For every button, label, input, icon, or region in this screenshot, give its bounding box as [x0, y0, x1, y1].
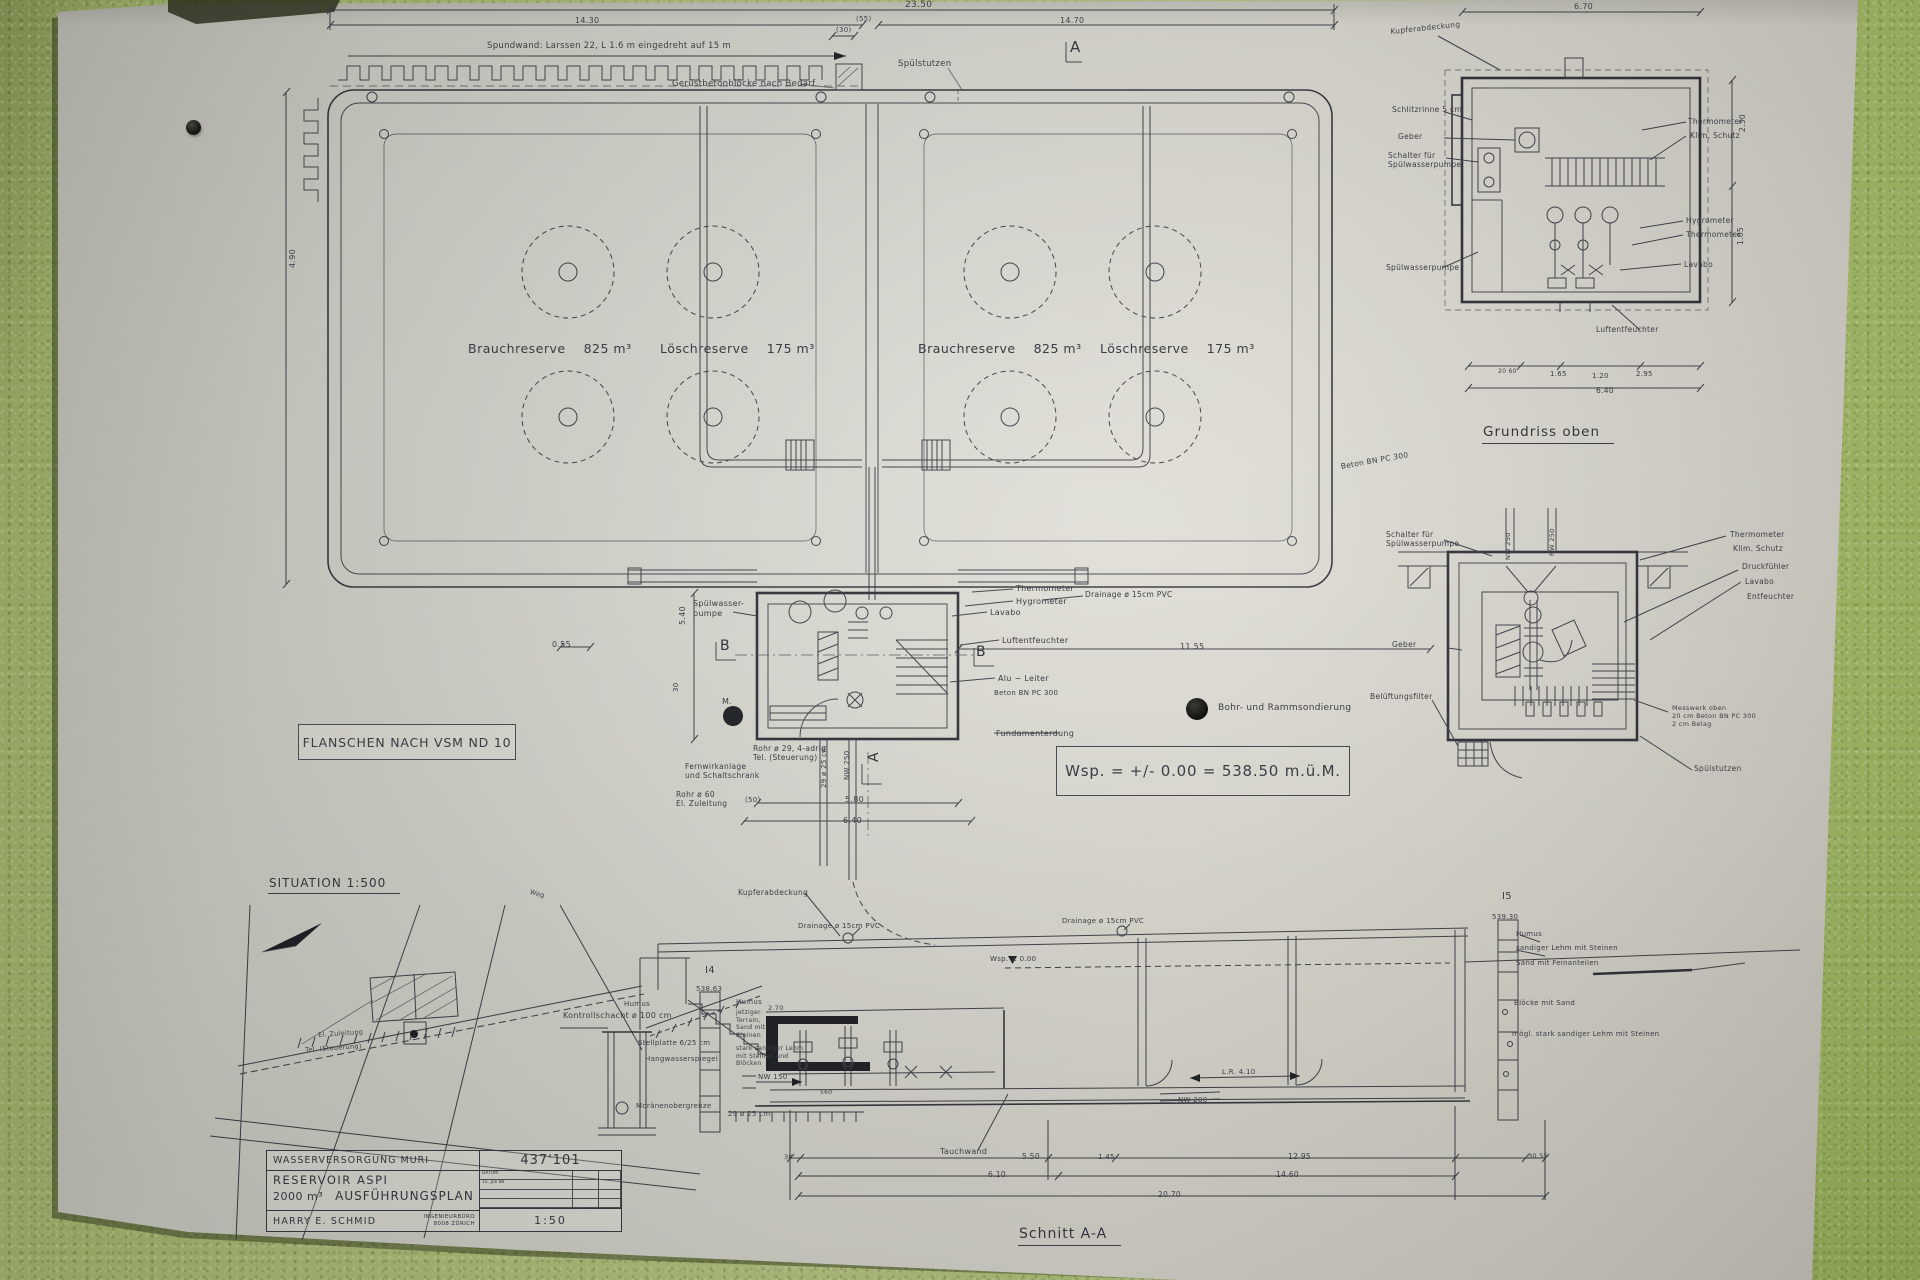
dim-1155: 11.55: [1180, 642, 1204, 652]
hangwasserspiegel-b: Hangwasserspiegel: [645, 1055, 718, 1064]
jetziger-note: jetziger Terrain, Sand mit Steinen: [736, 1009, 765, 1039]
i5-elev: 539.30: [1492, 913, 1518, 922]
dim-165v-tr: 1.65: [1736, 227, 1745, 245]
dim-1295-b: 12.95: [1288, 1152, 1311, 1161]
dim-490-left: 4.90: [288, 249, 298, 268]
weg-label: Weg: [529, 888, 546, 900]
hygrometer-tr: Hygrometer: [1686, 216, 1734, 225]
stellplatte-b: Stellplatte 6/25 cm: [638, 1039, 710, 1048]
geber-mr: Geber: [1392, 640, 1416, 649]
nw250-pipe: NW 250: [843, 750, 852, 780]
messwerk-note: Messwerk oben 20 cm Beton BN PC 300 2 cm…: [1672, 704, 1756, 728]
beton-diag: Beton BN PC 300: [1340, 450, 1409, 471]
tauchwand-b: Tauchwand: [940, 1147, 987, 1157]
humus-m: Humus: [736, 998, 762, 1007]
pile29-b: 29 ø 25 cm: [728, 1110, 770, 1119]
nw250-mr1: NW 250: [1504, 532, 1512, 560]
luftentfeuchter-tr: Luftentfeuchter: [1596, 325, 1659, 334]
nw150-b: NW 150: [758, 1073, 788, 1082]
drainage-b1: Drainage ø 15cm PVC: [798, 922, 880, 931]
wsp-b: Wsp. ± 0.00: [990, 955, 1036, 964]
lavabo-tr: Lavabo: [1684, 260, 1713, 269]
humus-r: Humus: [1516, 930, 1542, 939]
dim-30-top: (30): [836, 26, 852, 35]
nw250-mr2: NW 250: [1548, 528, 1556, 556]
drainage-main: Drainage ø 15cm PVC: [1085, 590, 1173, 599]
rohr29-note: Rohr ø 29, 4-adrig Tel. (Steuerung): [753, 744, 826, 763]
spuelstutzen-mr: Spülstutzen: [1694, 764, 1742, 773]
dim-2060-tr: 20 60: [1498, 368, 1517, 376]
kupferabdeckung-tr: Kupferabdeckung: [1390, 20, 1461, 37]
dim-640: 6.40: [843, 816, 862, 826]
moraene-l: Moränenobergrenze: [636, 1102, 711, 1111]
m-label: M.: [722, 697, 732, 707]
alu-leiter: Alu − Leiter: [998, 674, 1049, 684]
dim-120-tr: 1.20: [1592, 372, 1609, 381]
geruestbeton-note: Gerüstbetonblöcke nach Bedarf: [672, 79, 815, 90]
dim-055: 0.55: [552, 640, 571, 650]
dim-145-b: 1.45: [1098, 1153, 1115, 1162]
sandiger-r: sandiger Lehm mit Steinen: [1516, 944, 1618, 953]
i5-label: I5: [1502, 891, 1512, 904]
marker-b-right: B: [976, 644, 986, 662]
i4-elev: 538.63: [696, 985, 722, 994]
spuelstutzen-top: Spülstutzen: [898, 59, 951, 70]
dim-670-tr: 6.70: [1574, 2, 1593, 12]
lavabo-mr: Lavabo: [1745, 577, 1774, 586]
belueftungsfilter-mr: Belüftungsfilter: [1370, 692, 1432, 701]
thermometer2-tr: Thermometer: [1686, 230, 1741, 239]
rohr60-note: Rohr ø 60 El. Zuleitung: [676, 790, 727, 809]
lavabo-main: Lavabo: [990, 608, 1021, 618]
marker-a-top: A: [1070, 38, 1080, 57]
dim-30-b1: 30: [784, 1153, 793, 1161]
dim-165-tr: 1.65: [1550, 370, 1567, 379]
zuleitung-label: El. Zuleitung: [318, 1028, 364, 1039]
kupferabdeckung-b: Kupferabdeckung: [738, 888, 808, 897]
spuelwasserpumpe-main: Spülwasser- pumpe: [693, 599, 744, 619]
dim-1460-b: 14.60: [1276, 1170, 1299, 1179]
dim-640-tr: 6.40: [1596, 386, 1614, 395]
dim-55: (55): [856, 15, 872, 24]
druckfuehler-mr: Druckfühler: [1742, 562, 1789, 571]
entfeuchter-mr: Entfeuchter: [1747, 592, 1794, 601]
geber-tr: Geber: [1398, 132, 1422, 141]
drainage-b2: Drainage ø 15cm PVC: [1062, 917, 1144, 926]
dim-1470: 14.70: [1060, 16, 1084, 26]
fernwirk-note: Fernwirkanlage und Schaltschrank: [685, 762, 760, 781]
klim-schutz-tr: Klim. Schutz: [1690, 131, 1740, 140]
dim-1430: 14.30: [575, 16, 599, 26]
dim-295-tr: 2.95: [1636, 370, 1653, 379]
bloecke-r: Blöcke mit Sand: [1514, 999, 1575, 1008]
moegl-r: mögl. stark sandiger Lehm mit Steinen: [1512, 1030, 1659, 1039]
spundwand-note: Spundwand: Larssen 22, L 1.6 m eingedreh…: [487, 41, 731, 52]
humus-l: Humus: [624, 1000, 650, 1009]
thermometer-mr: Thermometer: [1730, 530, 1785, 539]
thermometer-tr: Thermometer: [1688, 117, 1743, 126]
luftentfeuchter-main: Luftentfeuchter: [1002, 636, 1068, 646]
fundamenterdung: Fundamenterdung: [996, 729, 1074, 739]
i4-label: I4: [705, 965, 715, 978]
dim-540: 5.40: [678, 606, 688, 625]
marker-b-left: B: [720, 638, 730, 656]
pipe29-v: 29 ø 25 cm: [820, 746, 829, 788]
dim-2070-b: 20.70: [1158, 1190, 1181, 1199]
dim-270-b: 2.70: [768, 1004, 784, 1012]
dim-610-b: 6.10: [988, 1170, 1006, 1179]
dim-2350: 23.50: [905, 0, 932, 11]
schalter-mr: Schalter für Spülwasserpumpe: [1386, 530, 1459, 549]
dim-3055-b: 30 55: [1528, 1152, 1548, 1160]
hygrometer-main: Hygrometer: [1016, 597, 1067, 607]
dim-560-b: 560: [820, 1089, 832, 1097]
sand-fein-r: Sand mit Feinanteilen: [1516, 959, 1599, 968]
thermometer-main: Thermometer: [1016, 584, 1074, 594]
klim-schutz-mr: Klim. Schutz: [1733, 544, 1783, 553]
beton-bn-main: Beton BN PC 300: [994, 689, 1058, 698]
annotation-layer: 23.5014.30(55)14.70Spundwand: Larssen 22…: [0, 0, 1920, 1280]
spuelwasserpumpe-tr: Spülwasserpumpe: [1386, 263, 1459, 272]
marker-a-bottom: A: [866, 752, 884, 762]
dim-30-left: 30: [672, 682, 681, 692]
lr410-b: L.R. 4.10: [1222, 1068, 1255, 1077]
kontrollschacht-b: Kontrollschacht ø 100 cm: [563, 1011, 672, 1021]
nw200-b: NW 200: [1178, 1096, 1208, 1105]
schlitzrinne-tr: Schlitzrinne 5 cm: [1392, 105, 1462, 114]
schalter-tr: Schalter für Spülwasserpumpe: [1388, 151, 1461, 170]
dim-580: 5.80: [845, 795, 864, 805]
dim-550-b: 5.50: [1022, 1152, 1040, 1161]
dim-230-tr: 2.30: [1738, 114, 1747, 132]
dim-50: (50): [745, 796, 761, 805]
stark-sandiger-note: stark sandiger Lehm mit Steinen und Blöc…: [736, 1045, 803, 1068]
tel-label: Tel. (Steuerung): [305, 1042, 362, 1054]
